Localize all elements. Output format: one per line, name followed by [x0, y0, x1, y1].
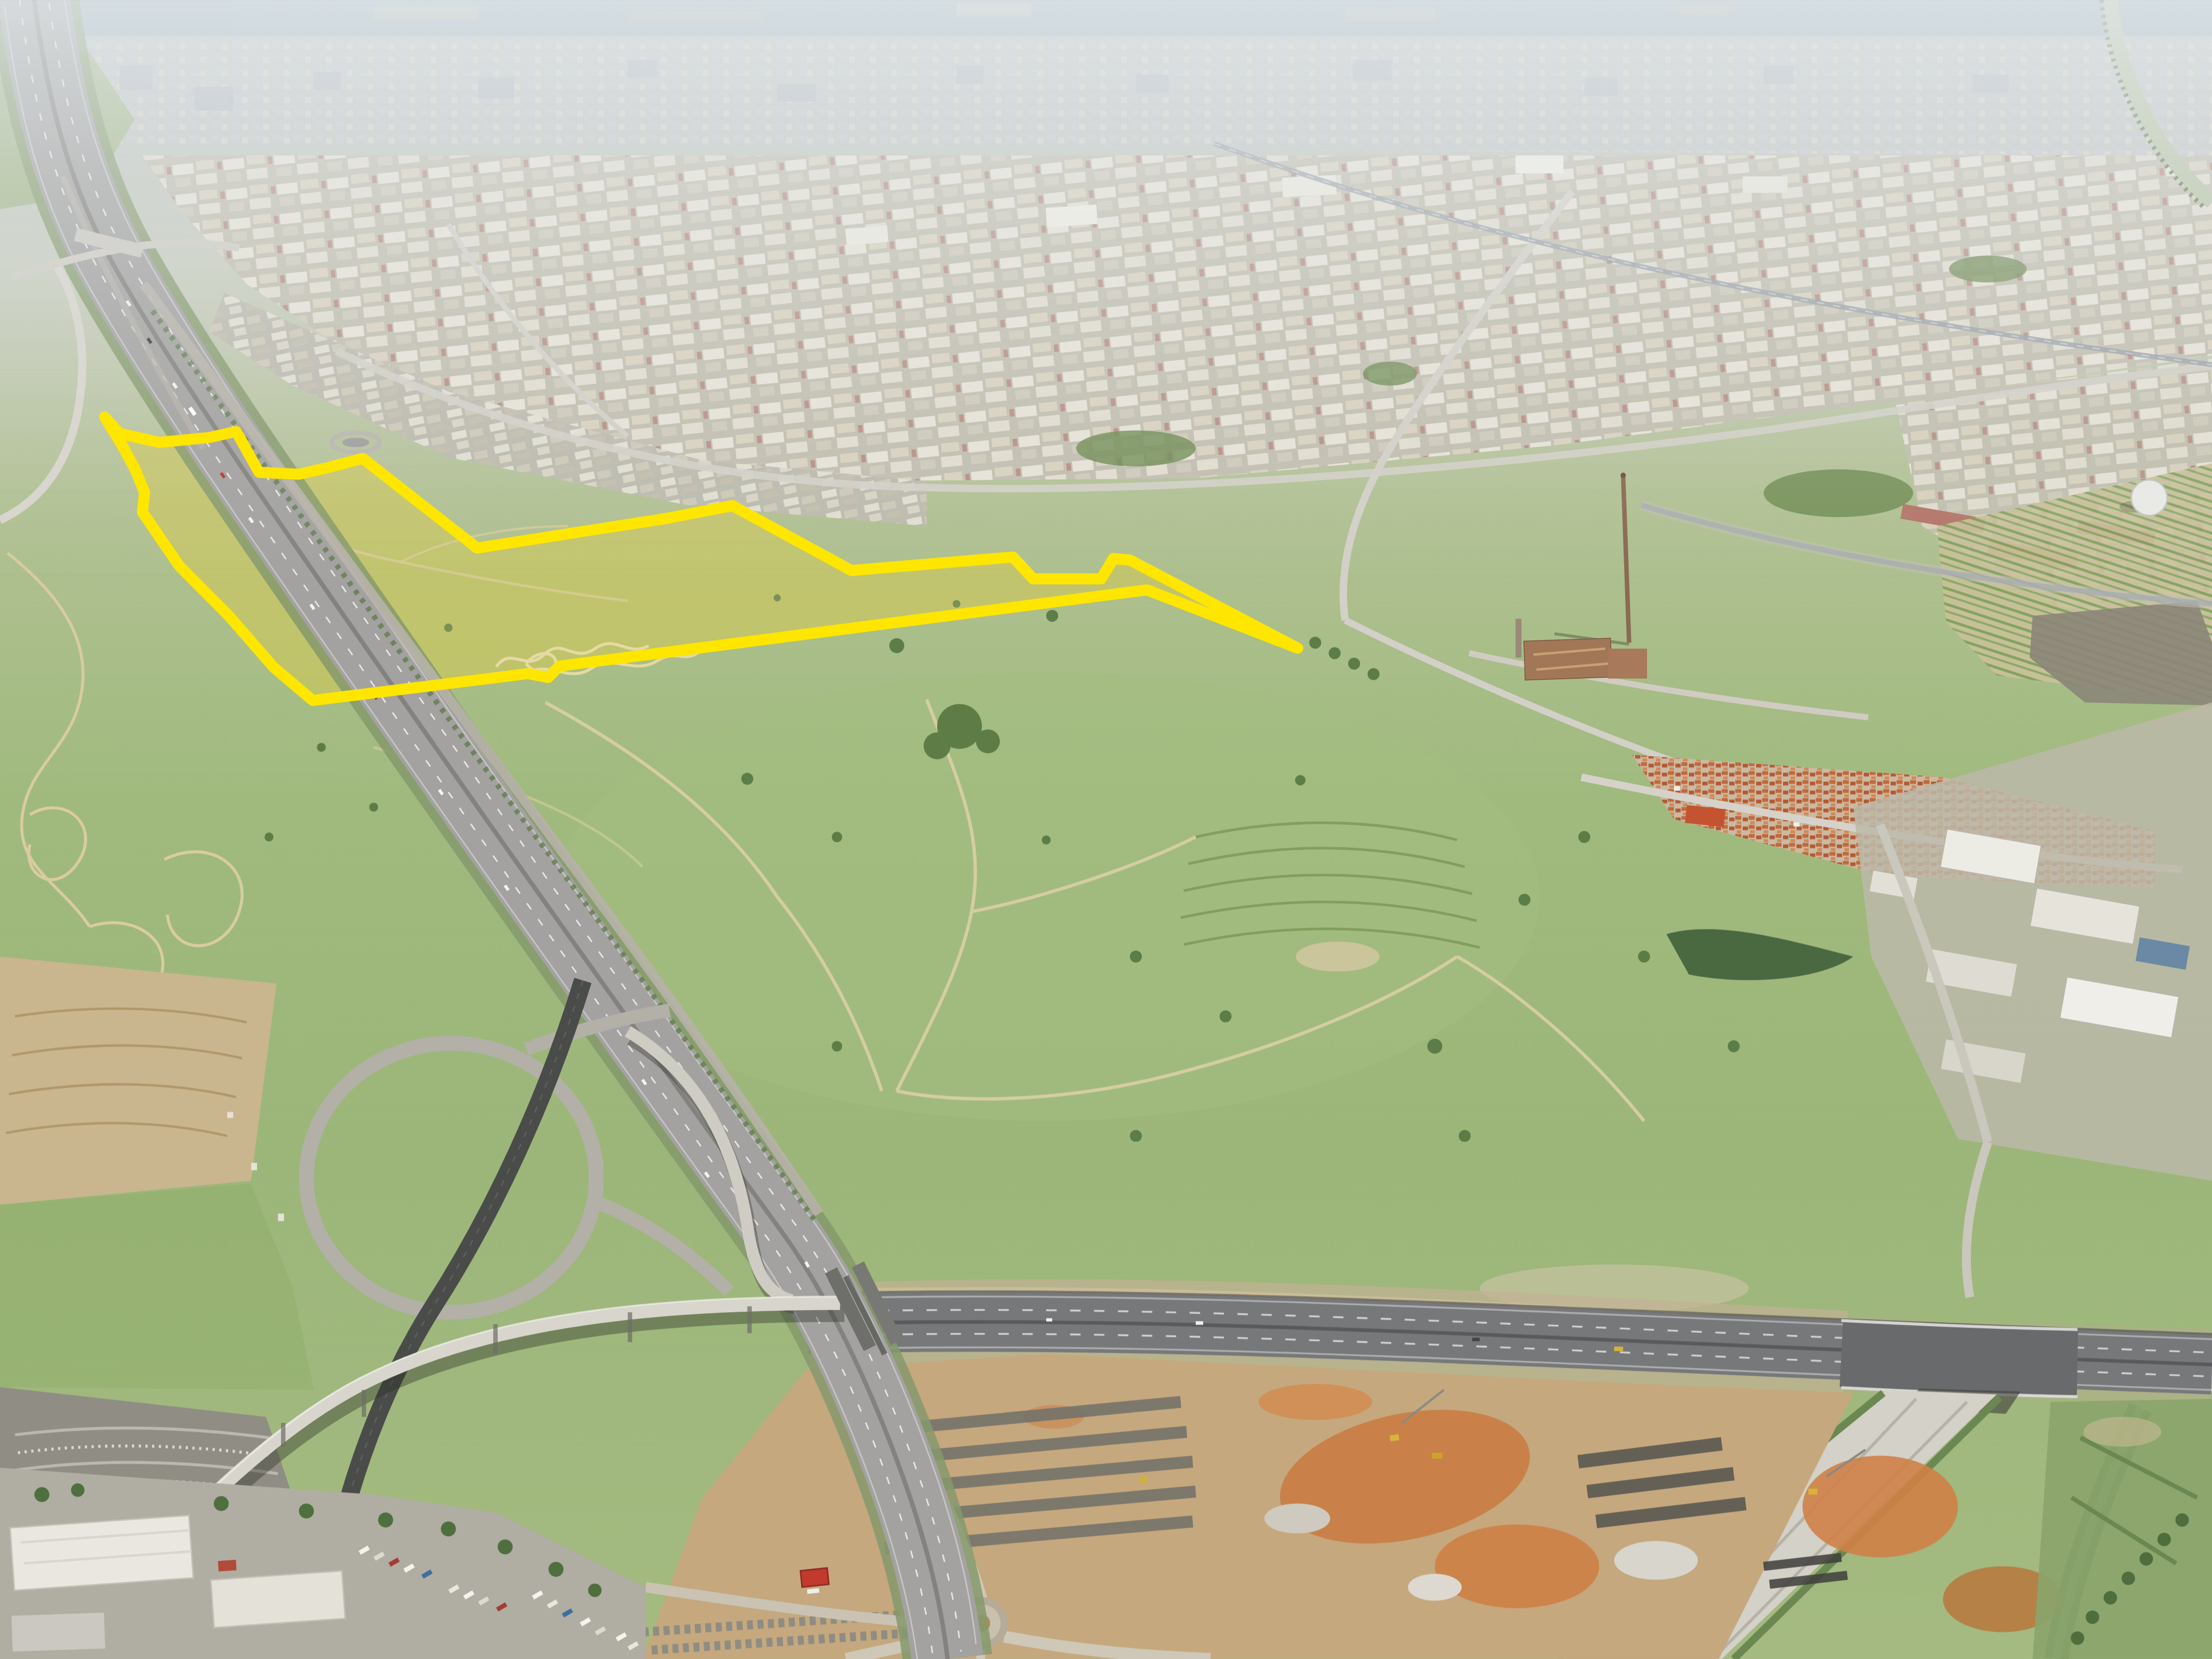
bottom-right-green: [2033, 1399, 2212, 1659]
bridge-deck: [1841, 1354, 2077, 1363]
aerial-photograph: [0, 0, 2212, 1659]
red-canopy-station: [801, 1568, 829, 1587]
atmospheric-haze: [0, 0, 2212, 956]
warehouse-3: [11, 1613, 105, 1652]
warehouse-2: [211, 1571, 345, 1628]
sand-mound: [1614, 1541, 1698, 1580]
terraced-earth-left: [0, 956, 284, 1221]
